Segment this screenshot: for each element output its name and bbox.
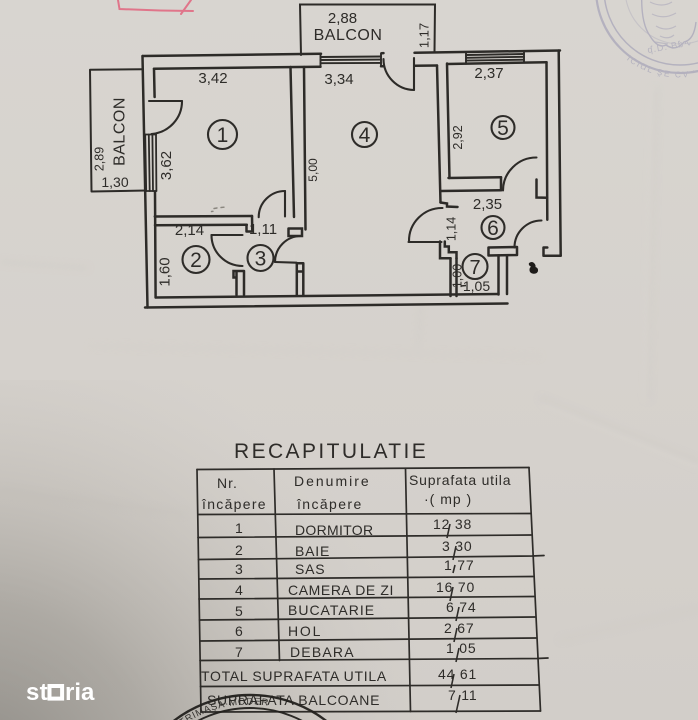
svg-text:5: 5 (497, 117, 509, 140)
svg-text:st: st (26, 679, 48, 706)
svg-text:1: 1 (235, 520, 243, 536)
svg-text:2,37: 2,37 (474, 65, 503, 82)
svg-text:6: 6 (487, 217, 499, 240)
svg-text:3,62: 3,62 (158, 151, 175, 180)
svg-text:7 11: 7 11 (448, 687, 477, 703)
svg-text:2 67: 2 67 (444, 620, 474, 636)
svg-text:Suprafata utila: Suprafata utila (409, 472, 511, 488)
svg-text:44 61: 44 61 (438, 666, 477, 682)
svg-text:1,17: 1,17 (417, 23, 432, 48)
svg-text:1 77: 1 77 (444, 557, 474, 573)
svg-text:2: 2 (235, 542, 243, 558)
svg-text:1,60: 1,60 (157, 257, 174, 286)
svg-text:SAS: SAS (295, 561, 325, 577)
svg-text:7: 7 (235, 644, 243, 660)
svg-text:2,14: 2,14 (175, 222, 204, 239)
svg-text:4: 4 (359, 124, 371, 147)
svg-text:1,14: 1,14 (445, 217, 459, 241)
svg-text:12 38: 12 38 (433, 516, 472, 532)
svg-text:1,11: 1,11 (249, 221, 277, 238)
svg-text:2,92: 2,92 (451, 125, 465, 149)
svg-text:TOTAL SUPRAFATA UTILA: TOTAL SUPRAFATA UTILA (201, 668, 387, 684)
svg-text:·( mp ): ·( mp ) (424, 491, 472, 507)
svg-text:16 70: 16 70 (436, 579, 475, 595)
svg-text:BALCON: BALCON (112, 97, 129, 166)
svg-text:3: 3 (235, 561, 243, 577)
svg-text:DEBARA: DEBARA (290, 644, 355, 660)
svg-text:Nr.: Nr. (217, 475, 238, 491)
svg-text:Denumire: Denumire (294, 473, 371, 489)
svg-text:3,34: 3,34 (324, 71, 353, 88)
svg-text:1: 1 (217, 124, 229, 147)
svg-text:BALCON: BALCON (314, 27, 383, 44)
svg-text:7: 7 (469, 257, 480, 279)
svg-text:DORMITOR: DORMITOR (295, 522, 373, 538)
svg-text:încăpere: încăpere (296, 496, 363, 512)
svg-text:încăpere: încăpere (201, 496, 267, 512)
svg-text:RECAPITULATIE: RECAPITULATIE (234, 440, 428, 463)
svg-text:BAIE: BAIE (295, 543, 330, 559)
svg-text:3: 3 (255, 248, 267, 271)
svg-text:ria: ria (65, 679, 95, 706)
svg-text:2,88: 2,88 (328, 10, 357, 27)
svg-text:1,05: 1,05 (463, 278, 490, 294)
svg-text:4: 4 (235, 582, 243, 598)
svg-text:2,89: 2,89 (93, 147, 107, 171)
svg-text:1,30: 1,30 (101, 174, 128, 190)
svg-text:3 30: 3 30 (442, 538, 472, 554)
svg-text:6 74: 6 74 (446, 599, 476, 615)
svg-text:HOL: HOL (288, 623, 322, 639)
svg-text:3,42: 3,42 (198, 70, 227, 87)
svg-text:5,00: 5,00 (306, 158, 320, 182)
svg-text:2,35: 2,35 (473, 196, 502, 213)
svg-text:2: 2 (190, 249, 202, 272)
svg-text:6: 6 (235, 623, 243, 639)
svg-text:CAMERA DE ZI: CAMERA DE ZI (288, 582, 394, 598)
svg-text:BUCATARIE: BUCATARIE (288, 602, 375, 618)
svg-text:5: 5 (235, 603, 243, 619)
svg-text:1 05: 1 05 (446, 640, 476, 656)
